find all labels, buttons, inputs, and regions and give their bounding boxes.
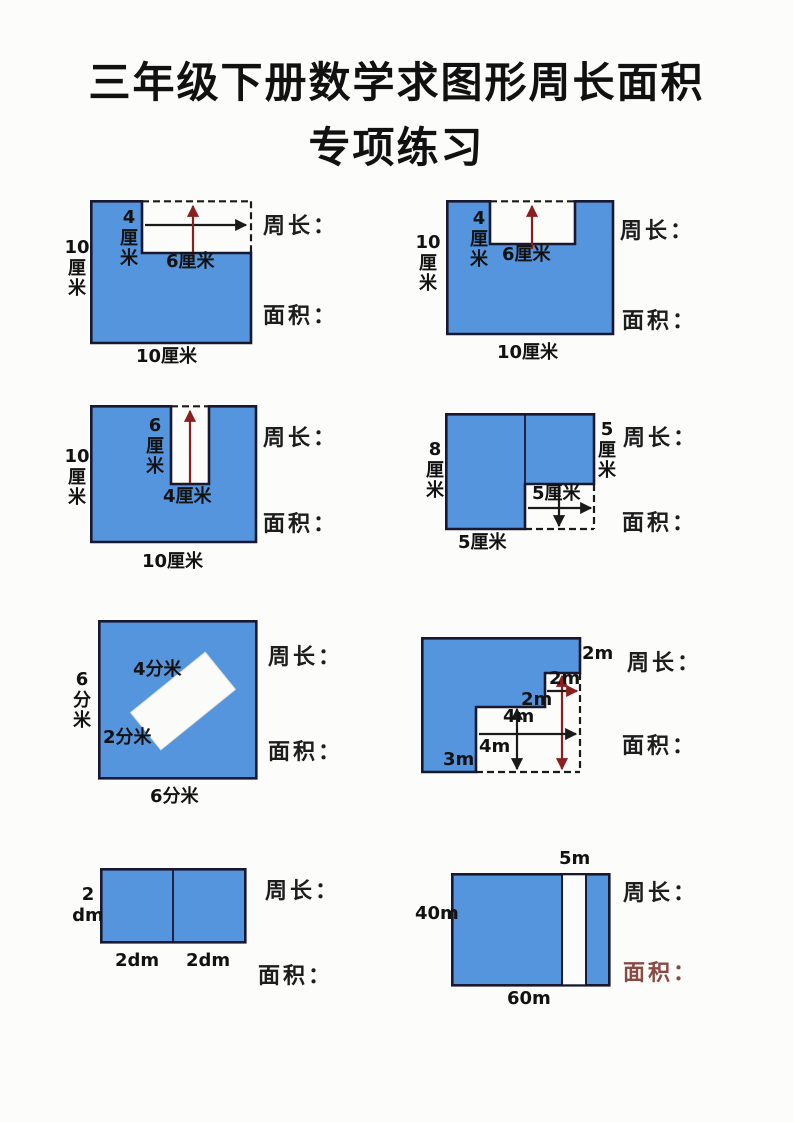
dim-label-mid-width: 4m [479, 737, 510, 758]
dim-label-rect-short: 2分米 [103, 728, 152, 749]
figure-2-square-notch-top-middle: 10 厘 米 4 厘 米 6厘米 10厘米 周长： 面积： [412, 195, 745, 375]
dim-label-bottom: 10厘米 [497, 343, 558, 364]
dim-label-bottom-left: 3m [443, 750, 474, 771]
area-label: 面积： [623, 955, 698, 987]
perimeter-label: 周长： [623, 420, 698, 452]
figure-4-l-shape: 8 厘 米 5 厘 米 5厘米 5厘米 周长： 面积： [415, 400, 745, 570]
area-label: 面积： [263, 506, 338, 538]
dim-label-notch-height: 4 厘 米 [116, 208, 142, 270]
dim-label-bottom: 10厘米 [136, 347, 197, 368]
title-line-1: 三年级下册数学求图形周长面积 [0, 52, 793, 117]
figure-3-shape [90, 405, 260, 547]
dashed-outline [142, 201, 251, 253]
figure-4-shape [445, 413, 597, 535]
area-label: 面积： [622, 728, 697, 760]
dim-label-left: 10 厘 米 [62, 447, 92, 509]
figure-7-shape [100, 868, 248, 948]
area-label: 面积： [622, 303, 697, 335]
area-label: 面积： [263, 298, 338, 330]
figure-8-shape [451, 873, 613, 989]
figure-1-shape [90, 200, 256, 350]
dim-label-bottom: 6分米 [150, 787, 199, 808]
dim-label-left: 8 厘 米 [422, 440, 448, 502]
dim-label-notch-height: 4 厘 米 [466, 209, 492, 271]
dim-label-left: 40m [415, 904, 459, 925]
dim-label-cutout: 5厘米 [532, 484, 581, 505]
dim-label-bottom: 10厘米 [142, 552, 203, 573]
dim-label-slot-depth: 6 厘 米 [142, 416, 168, 478]
area-label: 面积： [268, 734, 343, 766]
worksheet-title: 三年级下册数学求图形周长面积 专项练习 [0, 52, 793, 182]
dim-label-right: 5 厘 米 [595, 420, 619, 482]
dim-label-notch-width: 6厘米 [166, 252, 215, 273]
dim-label-strip: 5m [559, 849, 590, 870]
white-strip [562, 874, 586, 985]
perimeter-label: 周长： [268, 639, 343, 671]
dim-label-slot-width: 4厘米 [163, 487, 212, 508]
perimeter-label: 周长： [627, 645, 702, 677]
dim-label-top-right: 2m [582, 644, 613, 665]
perimeter-label: 周长： [620, 213, 695, 245]
blue-polygon [446, 414, 594, 529]
dim-label-bottom: 60m [507, 989, 551, 1010]
dim-label-mid-height: 4m [503, 707, 534, 728]
figure-7-double-square: 2 dm 2dm 2dm 周长： 面积： [60, 860, 390, 995]
figure-5-shape [98, 620, 260, 782]
dim-label-notch-width: 6厘米 [502, 245, 551, 266]
dim-label-left: 6 分 米 [68, 670, 96, 732]
dim-label-bottom-left: 2dm [115, 951, 159, 972]
title-line-2: 专项练习 [0, 117, 793, 182]
figure-5-square-rotated-rect: 6 分 米 4分米 2分米 6分米 周长： 面积： [60, 615, 395, 815]
dim-label-left: 10 厘 米 [62, 238, 92, 300]
blue-polygon [91, 406, 256, 542]
figure-1-square-notch-top-right: 10 厘 米 4 厘 米 6厘米 10厘米 周长： 面积： [60, 195, 390, 375]
area-label: 面积： [622, 505, 697, 537]
dim-label-bottom: 5厘米 [458, 533, 507, 554]
perimeter-label: 周长： [623, 875, 698, 907]
figure-6-staircase: 2m 2m 2m 4m 4m 3m 周长： 面积： [415, 630, 760, 795]
dim-label-rect-long: 4分米 [133, 660, 182, 681]
figure-3-square-slot-top: 10 厘 米 6 厘 米 4厘米 10厘米 周长： 面积： [60, 400, 390, 585]
area-label: 面积： [258, 958, 333, 990]
dim-label-notch: 2m [549, 669, 580, 690]
figure-8-rect-strip: 5m 40m 60m 周长： 面积： [415, 845, 760, 1025]
dim-label-left: 10 厘 米 [413, 233, 443, 295]
perimeter-label: 周长： [265, 873, 340, 905]
dim-label-bottom-right: 2dm [186, 951, 230, 972]
dim-label-left: 2 dm [70, 885, 106, 926]
perimeter-label: 周长： [263, 208, 338, 240]
perimeter-label: 周长： [263, 420, 338, 452]
